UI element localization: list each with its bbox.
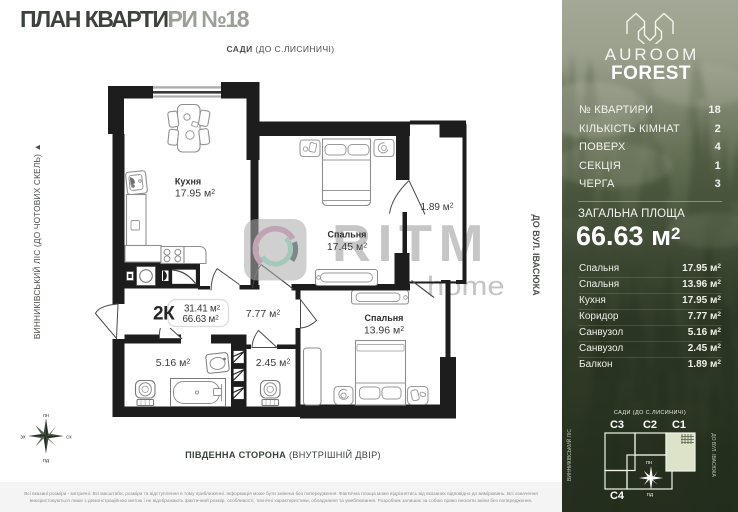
svg-text:ДО ВУЛ. ІВАСЮКА: ДО ВУЛ. ІВАСЮКА	[710, 433, 716, 477]
svg-text:пн: пн	[43, 413, 49, 419]
svg-text:С1: С1	[672, 419, 686, 431]
svg-text:13.96 м2: 13.96 м2	[364, 325, 404, 337]
svg-text:С3: С3	[610, 419, 624, 431]
svg-text:сх: сх	[66, 435, 72, 441]
svg-text:2.45 м2: 2.45 м2	[256, 357, 291, 369]
svg-text:7.77 м2: 7.77 м2	[246, 308, 281, 320]
svg-text:Кухня: Кухня	[175, 177, 201, 187]
svg-text:С4: С4	[610, 490, 625, 502]
svg-text:пд: пд	[43, 458, 50, 464]
svg-text:66.63 м2: 66.63 м2	[183, 314, 220, 325]
svg-text:САДИ (ДО С.ЛИСИНИЧІ): САДИ (ДО С.ЛИСИНИЧІ)	[614, 410, 686, 416]
svg-text:5.16 м2: 5.16 м2	[156, 357, 191, 369]
svg-text:Спальня: Спальня	[328, 230, 367, 240]
svg-text:пд: пд	[647, 492, 654, 498]
svg-text:17.95 м2: 17.95 м2	[175, 188, 215, 200]
svg-text:ВИННИКІВСЬКИЙ ЛІС: ВИННИКІВСЬКИЙ ЛІС	[565, 429, 573, 481]
svg-text:Спальня: Спальня	[365, 313, 404, 323]
svg-text:17.45 м2: 17.45 м2	[327, 241, 367, 253]
svg-text:1.89 м2: 1.89 м2	[420, 202, 453, 213]
svg-text:2К: 2К	[153, 304, 175, 325]
svg-text:зх: зх	[20, 435, 26, 441]
svg-text:пн: пн	[646, 460, 652, 466]
svg-text:С2: С2	[643, 419, 657, 431]
